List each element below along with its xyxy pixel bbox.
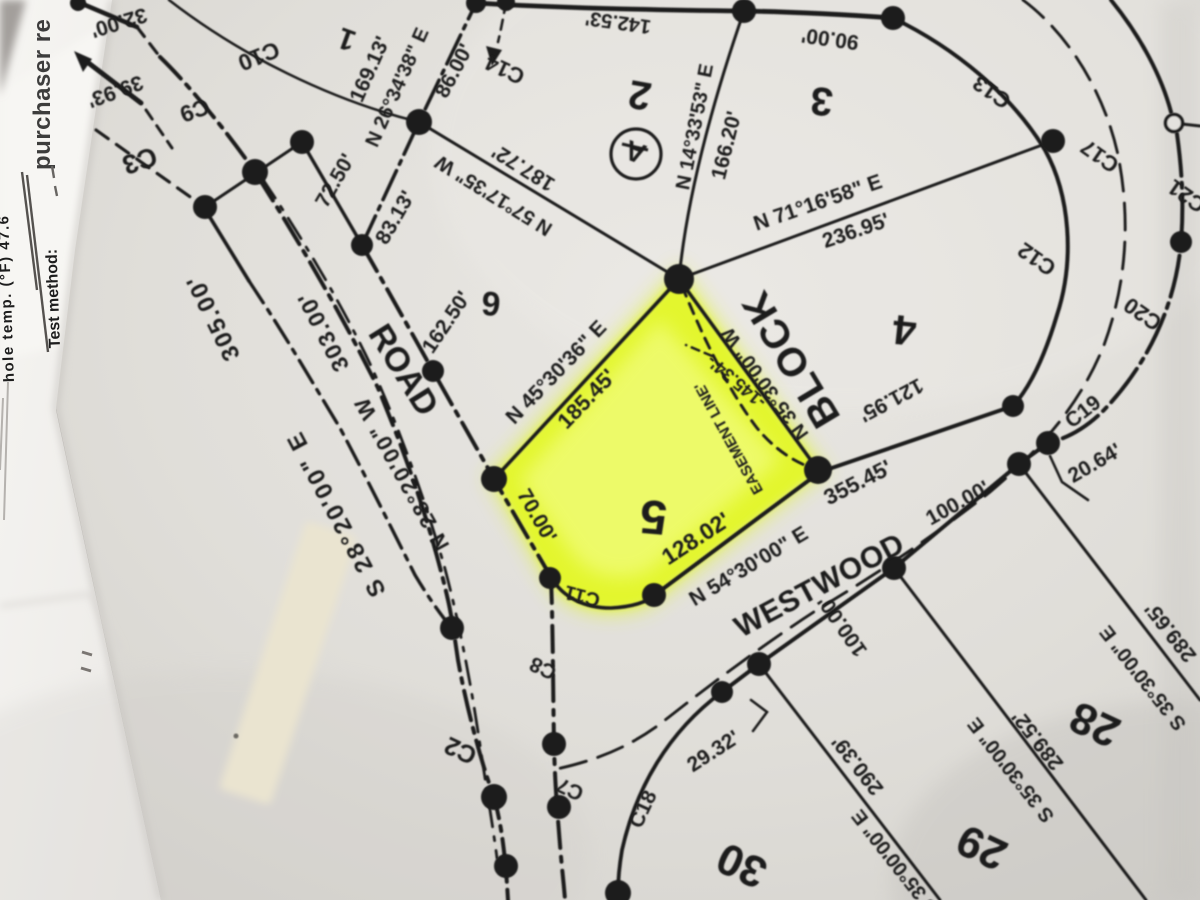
svg-text:3: 3 (808, 78, 835, 124)
svg-text:Test method:: Test method: (44, 249, 64, 349)
svg-text:6: 6 (480, 283, 502, 323)
svg-text:5: 5 (638, 489, 669, 544)
svg-text:purchaser re: purchaser re (29, 19, 56, 170)
